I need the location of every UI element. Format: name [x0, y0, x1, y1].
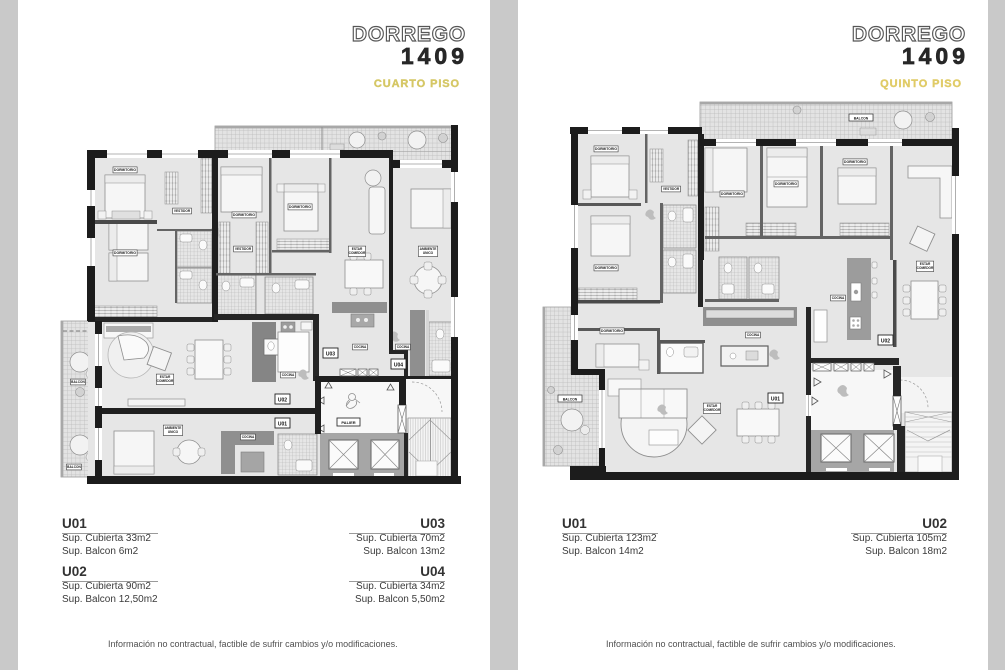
svg-text:BALCON: BALCON	[67, 465, 81, 469]
svg-text:COCINA: COCINA	[747, 333, 760, 337]
svg-text:UNICO: UNICO	[423, 251, 434, 255]
svg-text:U04: U04	[394, 363, 403, 369]
svg-text:DORMITORIO: DORMITORIO	[595, 147, 617, 151]
svg-text:COCINA: COCINA	[282, 373, 295, 377]
svg-text:DORMITORIO: DORMITORIO	[114, 168, 136, 172]
svg-text:BALCON: BALCON	[563, 397, 578, 401]
svg-text:BALCON: BALCON	[71, 380, 85, 384]
svg-text:DORMITORIO: DORMITORIO	[775, 182, 797, 186]
svg-text:COCINA: COCINA	[832, 296, 845, 300]
svg-text:DORMITORIO: DORMITORIO	[114, 251, 136, 255]
svg-text:VESTIDOR: VESTIDOR	[235, 247, 252, 251]
svg-text:UNICO: UNICO	[168, 430, 179, 434]
svg-text:COMEDOR: COMEDOR	[349, 251, 366, 255]
svg-text:U02: U02	[881, 339, 890, 345]
svg-text:U02: U02	[278, 398, 287, 404]
svg-text:COMEDOR: COMEDOR	[704, 408, 721, 412]
svg-text:VESTIDOR: VESTIDOR	[174, 209, 191, 213]
svg-text:DORMITORIO: DORMITORIO	[233, 213, 255, 217]
svg-text:COCINA: COCINA	[242, 435, 255, 439]
svg-text:COCINA: COCINA	[397, 345, 410, 349]
svg-text:U01: U01	[771, 397, 780, 403]
svg-text:U01: U01	[278, 422, 287, 428]
svg-text:PALIER: PALIER	[341, 420, 355, 425]
svg-text:VESTIDOR: VESTIDOR	[663, 187, 680, 191]
svg-text:COMEDOR: COMEDOR	[157, 379, 174, 383]
svg-text:DORMITORIO: DORMITORIO	[595, 266, 617, 270]
svg-text:COCINA: COCINA	[354, 345, 367, 349]
svg-text:DORMITORIO: DORMITORIO	[844, 160, 866, 164]
svg-text:DORMITORIO: DORMITORIO	[721, 192, 743, 196]
svg-text:DORMITORIO: DORMITORIO	[289, 205, 311, 209]
svg-text:BALCON: BALCON	[854, 116, 869, 120]
svg-text:DORMITORIO: DORMITORIO	[601, 329, 623, 333]
svg-text:U03: U03	[326, 352, 335, 358]
svg-text:COMEDOR: COMEDOR	[917, 266, 934, 270]
